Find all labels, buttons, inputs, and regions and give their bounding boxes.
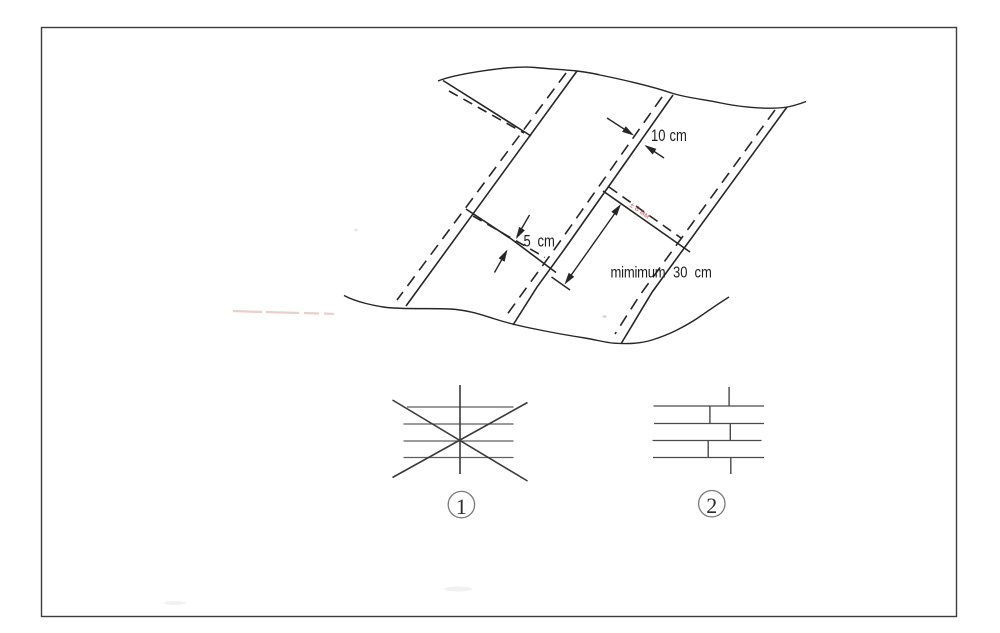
svg-text:10: 10 [651, 128, 665, 146]
svg-text:5: 5 [524, 233, 531, 251]
svg-text:mimimum: mimimum [611, 264, 666, 281]
svg-text:2: 2 [706, 493, 717, 518]
svg-text:cm: cm [695, 264, 712, 281]
svg-text:1: 1 [456, 494, 467, 519]
svg-text:cm: cm [670, 128, 687, 146]
svg-text:30: 30 [673, 264, 687, 281]
svg-text:cm: cm [538, 233, 555, 251]
